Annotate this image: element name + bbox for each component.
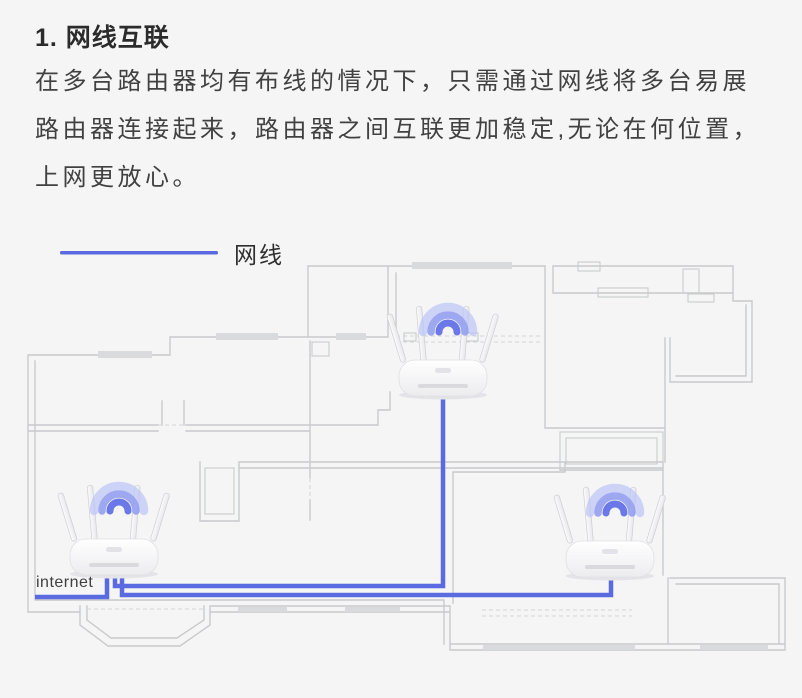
page: { "heading": { "title": "1. 网线互联" }, "pa…	[0, 0, 802, 698]
floorplan-canvas	[0, 258, 802, 698]
floor-plan-openings	[87, 336, 632, 616]
paragraph-line-2: 路由器连接起来，路由器之间互联更加稳定,无论在何位置，	[35, 106, 785, 154]
internet-label: internet	[36, 574, 93, 592]
paragraph-line-3: 上网更放心。	[35, 154, 785, 202]
router-internet	[57, 485, 169, 579]
floorplan-diagram: internet	[0, 258, 802, 698]
intro-paragraph: 在多台路由器均有布线的情况下，只需通过网线将多台易展 路由器连接起来，路由器之间…	[35, 58, 785, 202]
paragraph-line-1: 在多台路由器均有布线的情况下，只需通过网线将多台易展	[35, 58, 785, 106]
floor-plan-walls	[28, 266, 785, 650]
router-top	[386, 306, 498, 400]
section-title: 1. 网线互联	[35, 18, 170, 54]
router-bottom-right	[553, 487, 665, 581]
cable-legend-line	[60, 251, 218, 255]
